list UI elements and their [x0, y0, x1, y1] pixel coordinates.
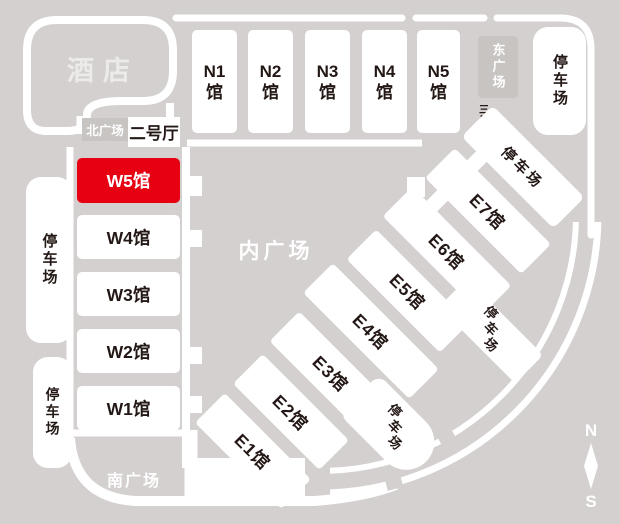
hall-n5-label: N5: [428, 61, 450, 82]
hall-n4-label: N4: [374, 61, 396, 82]
hall-w5-highlighted: W5馆: [77, 158, 180, 203]
hall2-entrance: 二号厅: [128, 117, 180, 147]
hall-w2: W2馆: [77, 329, 180, 373]
parking-west-upper: 停车场: [26, 177, 72, 343]
south-plaza-label: 南广场: [92, 467, 176, 491]
compass-needle-icon: [584, 443, 598, 489]
hall-n3: N3 馆: [305, 30, 350, 133]
hall-w4: W4馆: [77, 215, 180, 259]
hall2-label: 二号厅: [129, 120, 179, 144]
inner-plaza-label: 内广场: [215, 235, 337, 265]
hall-n4: N4 馆: [362, 30, 407, 133]
hall-n3-label: N3: [317, 61, 339, 82]
parking-southeast-label: 停 车 场: [382, 403, 408, 451]
compass-north-label: N: [581, 421, 601, 441]
parking-west-lower: 停车场: [33, 357, 72, 468]
hall-n1: N1 馆: [192, 30, 237, 133]
parking-east-label: 停 车 场: [477, 305, 505, 353]
hall-n5: N5 馆: [417, 30, 460, 133]
hall-n2-label: N2: [260, 61, 282, 82]
expo-venue-map: 酒店 N1 馆 N2 馆 N3 馆 N4 馆 N5 馆 东广场 三号厅 停车场 …: [0, 0, 620, 524]
hall-w2-label: W2馆: [107, 339, 151, 364]
hall-n1-label: N1: [204, 61, 226, 82]
hall-w1: W1馆: [77, 386, 180, 430]
hall-w4-label: W4馆: [107, 225, 151, 250]
hall-w3: W3馆: [77, 272, 180, 316]
hotel-label: 酒店: [38, 49, 168, 88]
parking-top-right: 停车场: [533, 27, 586, 135]
parking-west-upper-label: 停车场: [39, 233, 60, 287]
compass-south-label: S: [581, 492, 601, 512]
hall-n2: N2 馆: [248, 30, 293, 133]
north-plaza-label: 北广场: [86, 120, 124, 139]
parking-west-lower-label: 停车场: [43, 387, 63, 438]
north-plaza-box: 北广场: [82, 118, 128, 141]
parking-top-right-label: 停车场: [549, 54, 570, 108]
east-plaza-label: 东广场: [489, 43, 508, 91]
hall-w1-label: W1馆: [107, 396, 151, 421]
hall-w5-label: W5馆: [107, 168, 151, 193]
east-plaza-box: 东广场: [478, 36, 518, 98]
hall-w3-label: W3馆: [107, 282, 151, 307]
